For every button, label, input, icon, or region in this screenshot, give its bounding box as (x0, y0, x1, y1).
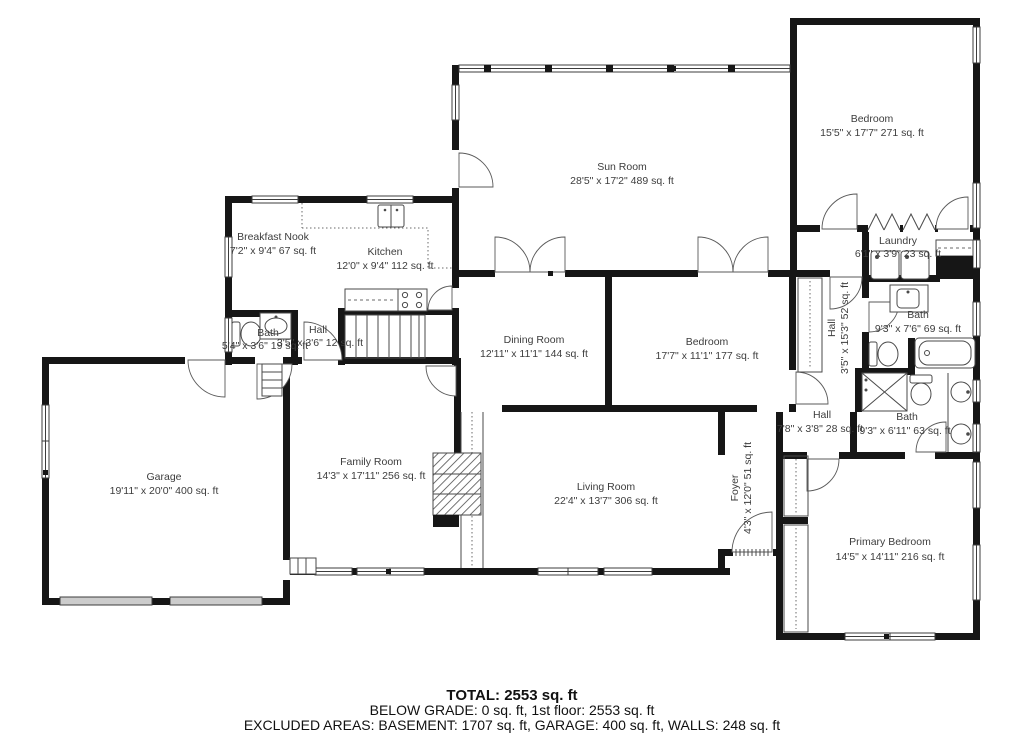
window (225, 237, 232, 277)
window (315, 568, 352, 575)
svg-text:7'8" x 3'8" 28 sq. ft: 7'8" x 3'8" 28 sq. ft (777, 423, 863, 435)
door-arc (188, 360, 225, 397)
svg-text:Hall: Hall (813, 409, 831, 421)
svg-text:Laundry: Laundry (879, 235, 918, 247)
room-label-primary-bedroom: Primary Bedroom 14'5" x 14'11" 216 sq. f… (836, 536, 945, 563)
room-label-living-room: Living Room 22'4" x 13'7" 306 sq. ft (554, 481, 658, 507)
stove (398, 289, 427, 311)
window (604, 568, 652, 575)
svg-text:9'3" x 7'6" 69 sq. ft: 9'3" x 7'6" 69 sq. ft (875, 323, 961, 335)
svg-text:Hall: Hall (309, 324, 327, 336)
svg-text:9'3" x 6'11" 63 sq. ft: 9'3" x 6'11" 63 sq. ft (859, 425, 950, 437)
svg-text:Breakfast Nook: Breakfast Nook (237, 231, 310, 243)
window (973, 380, 980, 402)
svg-text:Garage: Garage (146, 471, 181, 483)
svg-text:19'11" x 20'0" 400 sq. ft: 19'11" x 20'0" 400 sq. ft (110, 485, 219, 497)
door-arc (733, 237, 768, 272)
svg-text:12'0" x 9'4" 112 sq. ft: 12'0" x 9'4" 112 sq. ft (336, 260, 433, 272)
room-label-garage: Garage 19'11" x 20'0" 400 sq. ft (110, 471, 219, 497)
room-label-breakfast-nook: Breakfast Nook 7'2" x 9'4" 67 sq. ft (230, 231, 316, 257)
svg-text:4'3" x 12'0" 51 sq. ft: 4'3" x 12'0" 51 sq. ft (742, 442, 754, 534)
svg-text:14'3" x 17'11" 256 sq. ft: 14'3" x 17'11" 256 sq. ft (317, 470, 426, 482)
floor-plan-page: Bedroom 15'5" x 17'7" 271 sq. ft Sun Roo… (0, 0, 1024, 738)
window (367, 196, 413, 203)
door-arc (530, 237, 565, 272)
svg-text:Dining Room: Dining Room (504, 334, 565, 346)
svg-text:Bath: Bath (907, 309, 929, 321)
floor-plan: Bedroom 15'5" x 17'7" 271 sq. ft Sun Roo… (0, 0, 1024, 738)
summary-below-grade: BELOW GRADE: 0 sq. ft, 1st floor: 2553 s… (370, 702, 655, 718)
door-arc (822, 194, 857, 229)
door-arc (698, 237, 733, 272)
summary-excluded: EXCLUDED AREAS: BASEMENT: 1707 sq. ft, G… (244, 717, 780, 733)
window-band-sunroom (459, 65, 790, 72)
svg-text:Bedroom: Bedroom (851, 113, 894, 125)
exterior-steps (290, 558, 316, 574)
bathtub (915, 338, 975, 368)
bathroom-vanity (890, 285, 928, 312)
svg-text:28'5" x 17'2" 489 sq. ft: 28'5" x 17'2" 489 sq. ft (570, 175, 674, 187)
room-label-bedroom-top: Bedroom 15'5" x 17'7" 271 sq. ft (820, 113, 924, 139)
svg-text:Hall: Hall (826, 319, 838, 337)
primary-closet (784, 525, 808, 632)
toilet (869, 342, 898, 366)
svg-text:Living Room: Living Room (577, 481, 636, 493)
room-label-dining-room: Dining Room 12'11" x 11'1" 144 sq. ft (480, 334, 588, 360)
svg-text:12'11" x 11'1" 144 sq. ft: 12'11" x 11'1" 144 sq. ft (480, 348, 588, 360)
svg-text:Family Room: Family Room (340, 456, 402, 468)
svg-text:Bath: Bath (896, 411, 918, 423)
room-label-sun-room: Sun Room 28'5" x 17'2" 489 sq. ft (570, 161, 674, 187)
svg-text:Kitchen: Kitchen (367, 246, 402, 258)
svg-text:15'5" x 17'7" 271 sq. ft: 15'5" x 17'7" 271 sq. ft (820, 127, 924, 139)
laundry-counter (936, 240, 973, 279)
double-vanity (948, 373, 971, 452)
room-label-foyer: Foyer 4'3" x 12'0" 51 sq. ft (729, 442, 754, 534)
window (973, 302, 980, 336)
landing-steps (262, 364, 282, 396)
svg-text:22'4" x 13'7" 306 sq. ft: 22'4" x 13'7" 306 sq. ft (554, 495, 658, 507)
door-arc (428, 286, 452, 310)
window (538, 568, 598, 575)
window (452, 85, 459, 120)
window (973, 183, 980, 228)
window (973, 462, 980, 508)
svg-text:7'2" x 9'4" 67 sq. ft: 7'2" x 9'4" 67 sq. ft (230, 245, 316, 257)
door-arc (426, 366, 456, 396)
door-arc (936, 197, 968, 229)
window (973, 545, 980, 600)
window (973, 240, 980, 268)
room-label-bedroom-mid: Bedroom 17'7" x 11'1" 177 sq. ft (656, 336, 759, 362)
svg-text:3'5" x 15'3" 52 sq. ft: 3'5" x 15'3" 52 sq. ft (839, 282, 851, 374)
window (973, 424, 980, 452)
svg-text:17'7" x 11'1" 177 sq. ft: 17'7" x 11'1" 177 sq. ft (656, 350, 759, 362)
svg-text:Bath: Bath (257, 327, 279, 339)
room-label-kitchen: Kitchen 12'0" x 9'4" 112 sq. ft (336, 246, 433, 272)
svg-text:Primary Bedroom: Primary Bedroom (849, 536, 931, 548)
toilet (910, 375, 932, 405)
summary-block: TOTAL: 2553 sq. ft BELOW GRADE: 0 sq. ft… (244, 687, 780, 733)
room-label-family-room: Family Room 14'3" x 17'11" 256 sq. ft (317, 456, 426, 482)
window (845, 633, 935, 640)
window (42, 405, 49, 478)
svg-text:Bedroom: Bedroom (686, 336, 729, 348)
door-arc (796, 372, 828, 404)
svg-text:Foyer: Foyer (729, 474, 741, 501)
window (973, 27, 980, 63)
svg-text:6'1" x 3'9" 23 sq. ft: 6'1" x 3'9" 23 sq. ft (855, 248, 941, 260)
fireplace (433, 453, 481, 527)
svg-text:14'5" x 14'11" 216 sq. ft: 14'5" x 14'11" 216 sq. ft (836, 551, 945, 563)
shower (862, 373, 907, 411)
door-arc (459, 153, 493, 187)
svg-text:3'5" x 3'6" 12 sq. ft: 3'5" x 3'6" 12 sq. ft (277, 337, 363, 349)
svg-text:Sun Room: Sun Room (597, 161, 647, 173)
hall-closet (798, 278, 822, 372)
door-arc (807, 459, 839, 491)
window (252, 196, 298, 203)
kitchen-sink (378, 205, 404, 227)
door-arc (495, 237, 530, 272)
primary-closet (784, 456, 808, 516)
